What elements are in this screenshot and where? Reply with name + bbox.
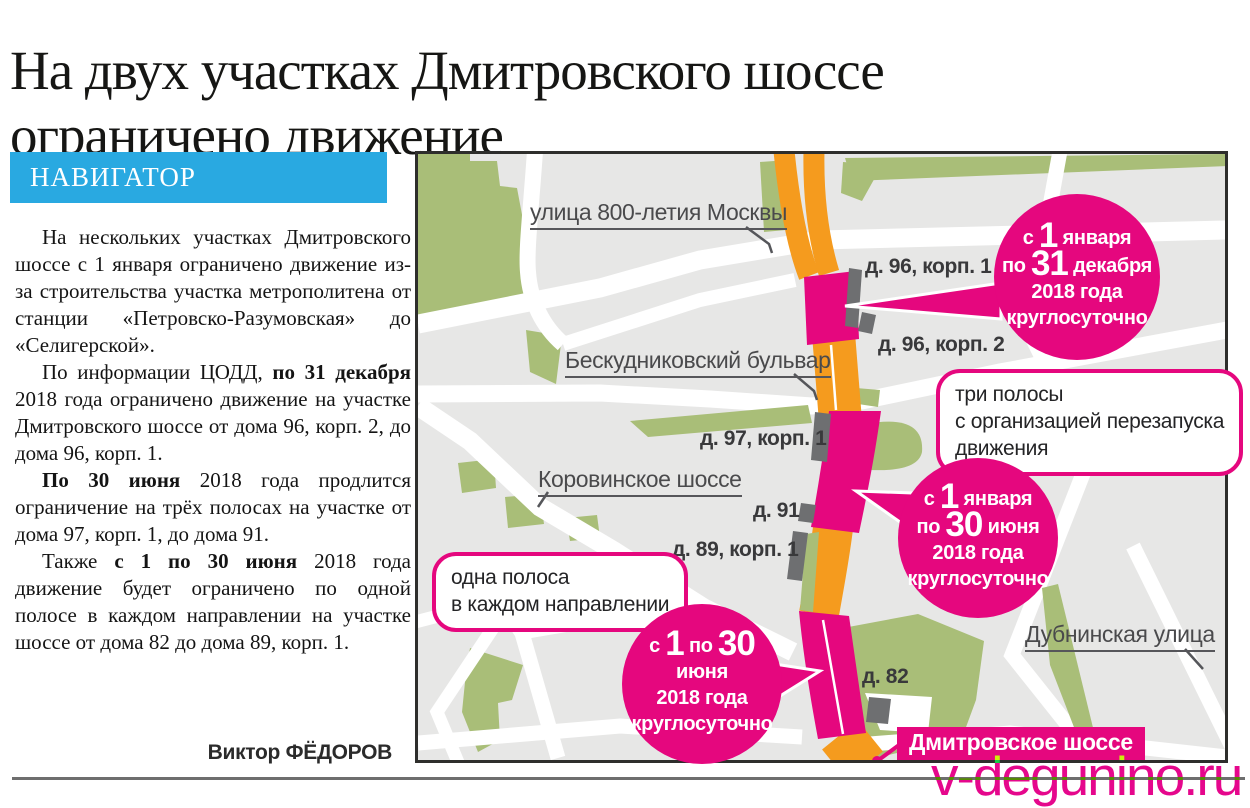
building-label-96-1: д. 96, корп. 1 bbox=[865, 255, 991, 279]
restriction-circle-jun: с 1 по 30 июня2018 годакруглосуточно bbox=[622, 604, 782, 764]
building-label-96-2: д. 96, корп. 2 bbox=[878, 333, 1004, 357]
building-label-82: д. 82 bbox=[862, 665, 908, 689]
callout-one-lane: одна полосав каждом направлении bbox=[432, 552, 688, 632]
building-label-89-1: д. 89, корп. 1 bbox=[672, 538, 798, 562]
street-label-800-letiya: улица 800-летия Москвы bbox=[530, 199, 787, 230]
restriction-circle-jan-jun: с 1 январяпо 30 июня2018 годакруглосуточ… bbox=[898, 458, 1058, 618]
kicker-banner: НАВИГАТОР bbox=[10, 152, 387, 203]
street-label-korovinskoe: Коровинское шоссе bbox=[538, 466, 742, 497]
map-panel: улица 800-летия Москвы Бескудниковский б… bbox=[415, 151, 1228, 763]
site-watermark: v-degunino.ru bbox=[931, 744, 1241, 808]
building-label-97-1: д. 97, корп. 1 bbox=[700, 427, 826, 451]
kicker-label: НАВИГАТОР bbox=[10, 152, 196, 203]
author-byline: Виктор ФЁДОРОВ bbox=[15, 741, 392, 765]
restriction-circle-jan-dec: с 1 январяпо 31 декабря2018 годакруглосу… bbox=[994, 194, 1160, 360]
street-label-dubninskaya: Дубнинская улица bbox=[1025, 621, 1215, 652]
street-label-beskudnikovsky: Бескудниковский бульвар bbox=[565, 347, 831, 378]
article-body: На нескольких участках Дмитровского шосс… bbox=[15, 224, 411, 656]
building-label-91: д. 91 bbox=[753, 499, 799, 523]
page-title: На двух участках Дмитровского шоссе огра… bbox=[10, 39, 1020, 169]
